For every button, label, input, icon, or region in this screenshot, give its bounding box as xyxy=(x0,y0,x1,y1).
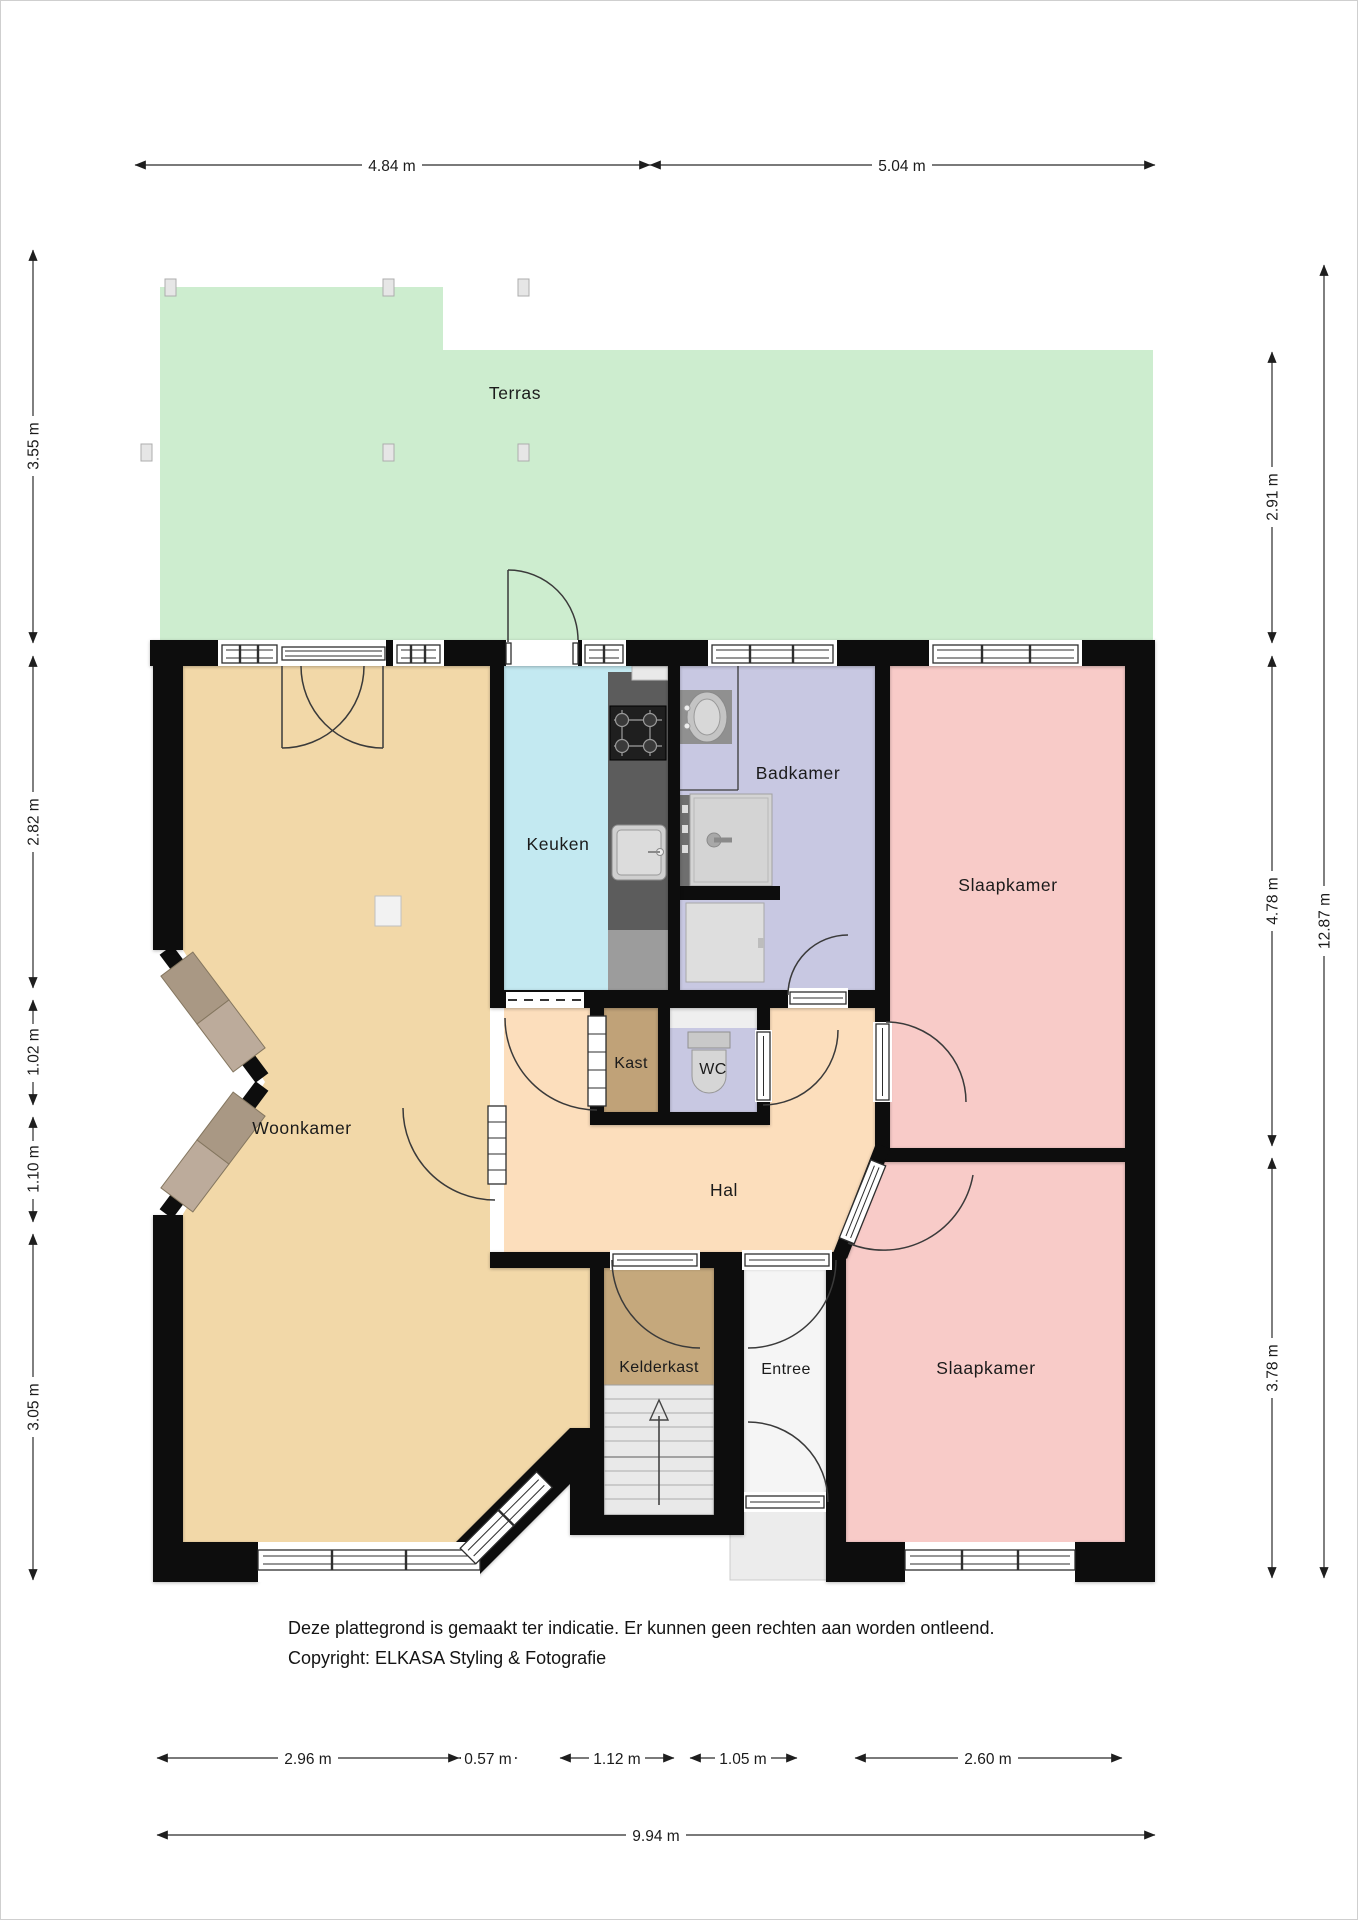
terras-post xyxy=(518,444,529,461)
dim-bottom-4: 1.05 m xyxy=(719,1751,766,1768)
dim-bottom-3: 1.12 m xyxy=(593,1751,640,1768)
floorplan-canvas: 4.84 m 5.04 m 3.55 m 2.82 m 1.02 m 1.10 … xyxy=(0,0,1358,1920)
floorplan-page: 4.84 m 5.04 m 3.55 m 2.82 m 1.02 m 1.10 … xyxy=(0,0,1358,1920)
counter-sill xyxy=(632,666,668,680)
window-badkamer xyxy=(708,640,837,666)
wc-cistern-niche xyxy=(670,1005,757,1028)
dim-right-1: 2.91 m xyxy=(1265,473,1282,520)
terras-post xyxy=(141,444,152,461)
room-label-slaapkamer-boven: Slaapkamer xyxy=(958,875,1057,895)
dim-bottom-1: 2.96 m xyxy=(284,1751,331,1768)
dim-left-1: 3.55 m xyxy=(26,422,43,469)
column-block xyxy=(375,896,401,926)
room-slaapkamer-onder-floor xyxy=(846,1162,1125,1542)
room-label-wc: WC xyxy=(699,1061,726,1078)
stairs-icon xyxy=(604,1385,714,1515)
terras-post xyxy=(383,279,394,296)
dim-bottom-5: 2.60 m xyxy=(964,1751,1011,1768)
dim-left-4: 1.10 m xyxy=(26,1145,43,1192)
window-slaapkamer-boven xyxy=(929,640,1082,666)
entree-stoop xyxy=(730,1510,830,1580)
window-keuken xyxy=(582,640,626,666)
room-label-hal: Hal xyxy=(710,1180,738,1200)
terras-area xyxy=(141,279,1153,643)
room-label-kelderkast: Kelderkast xyxy=(619,1359,699,1376)
dim-top-1: 4.84 m xyxy=(368,158,415,175)
window-woonkamer-1 xyxy=(218,640,281,666)
terras-post xyxy=(518,279,529,296)
dim-right-3: 3.78 m xyxy=(1265,1344,1282,1391)
dim-right-2: 4.78 m xyxy=(1265,877,1282,924)
room-label-badkamer: Badkamer xyxy=(756,763,841,783)
window-woonkamer-2 xyxy=(393,640,444,666)
room-label-kast: Kast xyxy=(614,1055,648,1072)
footer-disclaimer: Deze plattegrond is gemaakt ter indicati… xyxy=(288,1618,994,1638)
dim-left-5: 3.05 m xyxy=(26,1383,43,1430)
room-entree-floor xyxy=(744,1268,826,1498)
dim-top-2: 5.04 m xyxy=(878,158,925,175)
room-slaapkamer-boven-floor xyxy=(890,666,1125,1148)
terras-post xyxy=(165,279,176,296)
washer-icon xyxy=(686,903,764,982)
dim-bottom-2: 0.57 m xyxy=(464,1751,511,1768)
room-label-entree: Entree xyxy=(761,1361,811,1378)
dim-left-3: 1.02 m xyxy=(26,1028,43,1075)
room-label-terras: Terras xyxy=(489,383,541,403)
dim-left-2: 2.82 m xyxy=(26,798,43,845)
window-woonkamer-bay xyxy=(258,1542,480,1582)
dim-bottom-total: 9.94 m xyxy=(632,1828,679,1845)
window-slaapkamer-onder xyxy=(905,1542,1075,1582)
footer-copyright: Copyright: ELKASA Styling & Fotografie xyxy=(288,1648,606,1668)
room-label-slaapkamer-onder: Slaapkamer xyxy=(936,1358,1035,1378)
room-label-woonkamer: Woonkamer xyxy=(252,1118,351,1138)
dim-right-total: 12.87 m xyxy=(1317,893,1334,949)
room-label-keuken: Keuken xyxy=(527,834,590,854)
footer: Deze plattegrond is gemaakt ter indicati… xyxy=(288,1618,994,1668)
terras-post xyxy=(383,444,394,461)
passage-keuken-hal xyxy=(506,992,584,1008)
kitchen-counter xyxy=(608,666,668,992)
